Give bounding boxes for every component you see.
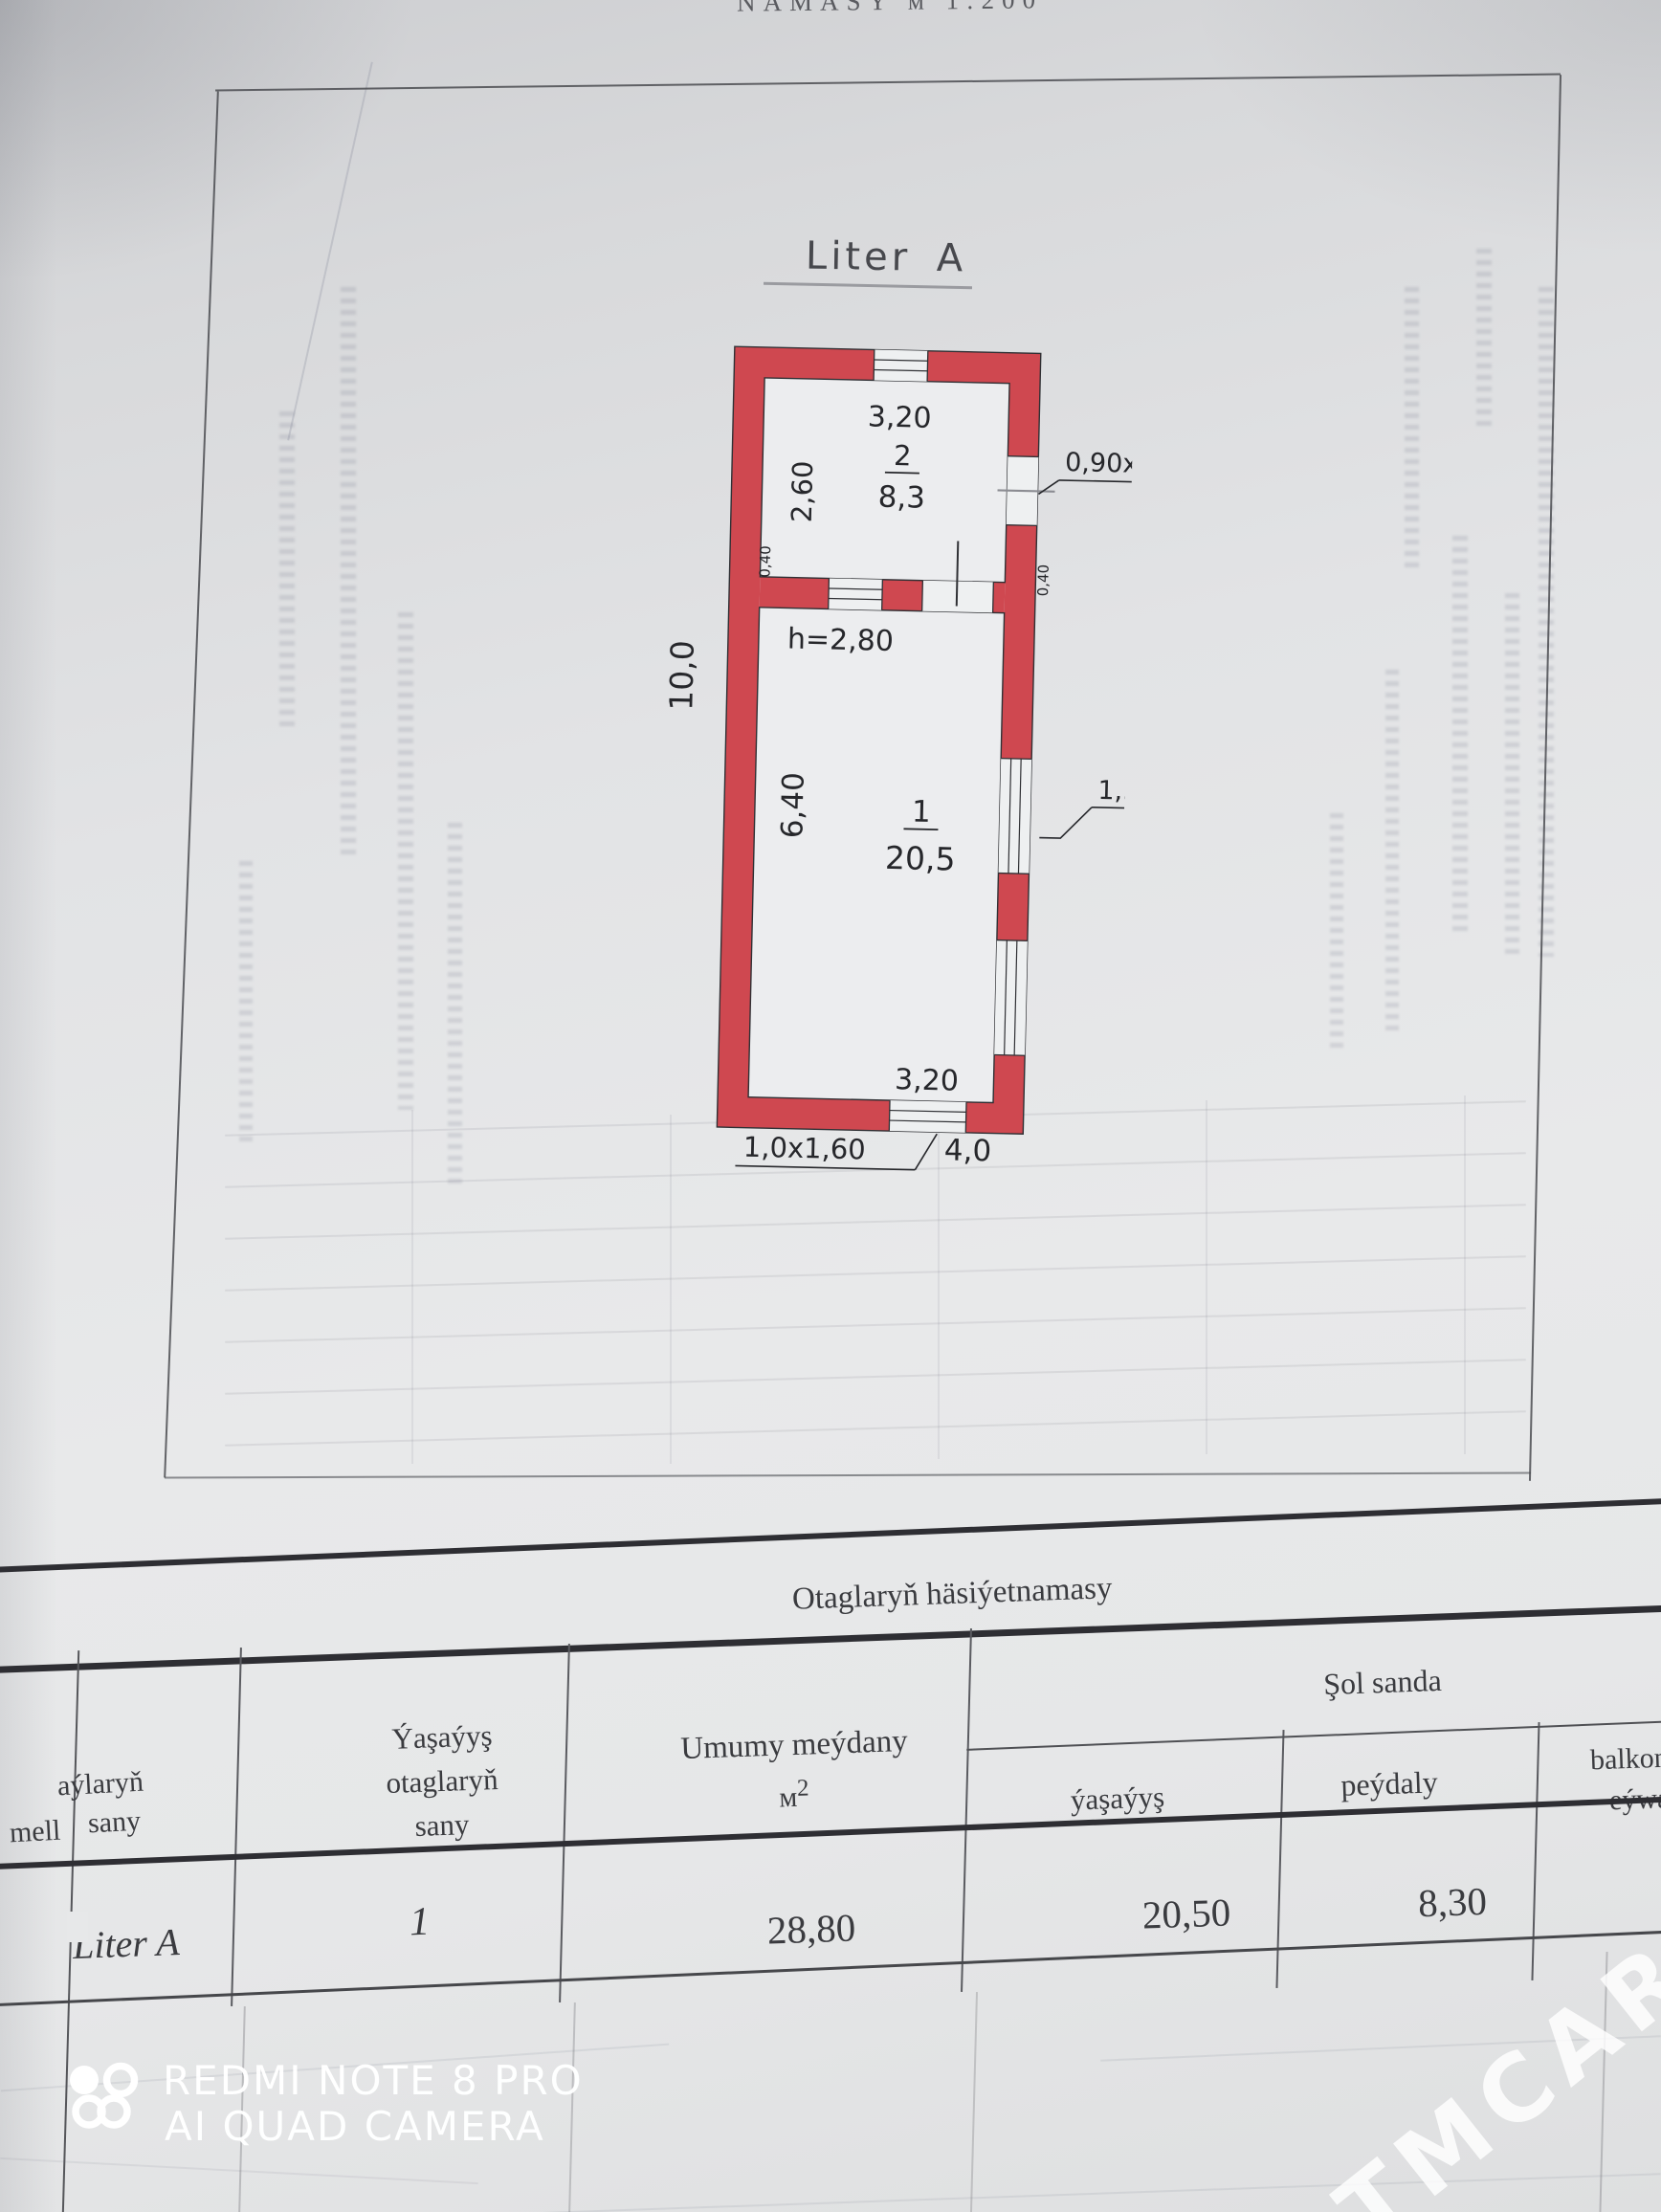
wall-thickness-left: 0,40 [756,545,774,578]
room1-area: 20,5 [885,839,956,878]
table-group-header: Şol sanda [1243,1660,1521,1705]
bottom-door-label-underline [735,1165,915,1169]
col2-header-line1: Ýaşaýyş [336,1716,547,1759]
room1-number-underline [903,829,938,829]
bleed-through-smudge [398,612,413,1110]
col3-header: Umumy meýdany [650,1723,938,1768]
plan-title-underline [764,282,972,290]
bleed-grid-line [225,1307,1526,1342]
frame-border-left [164,91,219,1477]
frame-border-right [1529,75,1561,1481]
dim-room1-height: 6,40 [775,772,811,839]
table-top-thick-line [0,1496,1661,1574]
window-label-underline [1092,807,1135,811]
table-section-title: Otaglaryň häsiýetnamasy [791,1571,1108,1617]
bleed-through-smudge [279,411,295,727]
row-useful-area: 8,30 [1375,1876,1530,1928]
room1-number: 1 [912,795,932,829]
camera-watermark-line2: AI QUAD CAMERA [165,2103,545,2150]
bleed-through-smudge [1505,593,1519,957]
bleed-grid-line [225,1204,1526,1239]
photographed-floor-plan-document: NAMASY м 1:200 Liter A [0,0,1661,2212]
bleed-grid-line [225,1359,1526,1394]
room2-number-underline [885,473,919,474]
site-watermark-partial: TMCARS [0,0,338,24]
bleed-through-smudge [1405,287,1419,574]
ceiling-height-label: h=2,80 [787,623,895,659]
col2-header-line2: otaglaryň [336,1760,547,1803]
plan-title: Liter A [806,234,967,281]
dim-room1-width: 3,20 [895,1063,960,1098]
table-col-separator-faint [568,2002,575,2212]
dim-total-height: 10,0 [662,640,701,711]
bleed-through-smudge [1385,670,1399,1033]
window-size-label: 1,50x1,50 [1097,776,1135,808]
table-group-subline [966,1720,1661,1751]
floor-plan-svg: 3,20 2,60 2 8,3 0,90x2,10 h=2,80 10,0 0,… [647,324,1136,1206]
frame-border-bottom [165,1472,1531,1479]
room2-area: 8,3 [877,480,925,516]
col1-header-line1: aýlaryň [56,1766,144,1803]
bleed-grid-line [411,1110,413,1464]
door-size-label: 0,90x2,10 [1065,448,1135,480]
window-bottom [889,1100,966,1133]
room2-number: 2 [894,439,912,472]
table-col-separator-faint [970,1992,978,2212]
door-label-underline [1059,480,1135,484]
bleed-through-smudge [1330,813,1343,1052]
window-label-leader [1039,807,1092,839]
paper-crease [287,62,372,441]
window-top [874,349,928,381]
frame-border-top [215,74,1561,92]
table-col-separator [1531,1722,1539,1980]
window-partition [829,578,883,609]
page-caption-fragment: NAMASY м 1:200 [737,0,1043,18]
bleed-through-smudge [239,861,253,1148]
bleed-grid-line [1206,1100,1207,1454]
table-col-separator [231,1648,241,2006]
window-room1-upper [998,759,1031,874]
unit-sup: 2 [797,1775,809,1801]
row-living-area: 20,50 [1109,1888,1264,1939]
bleed-through-smudge [341,287,356,861]
bleed-through-smudge [1452,536,1468,938]
dim-room2-height: 2,60 [786,460,819,522]
col3-unit: м2 [745,1774,842,1815]
col1-header-line2: mell [9,1815,61,1850]
bleed-grid-line [225,1410,1526,1446]
row-total-area: 28,80 [734,1903,889,1955]
bottom-door-label-leader [915,1134,937,1170]
col1-header-line3: sany [87,1805,142,1841]
row-building-name: Liter A [72,1919,180,1968]
dim-room2-width: 3,20 [867,400,932,435]
unit-m: м [779,1781,798,1814]
wall-thickness-right: 0,40 [1034,564,1052,597]
dim-total-width: 4,0 [943,1133,991,1168]
subcol-useful-header: peýdaly [1317,1763,1461,1803]
bleed-grid-line [225,1255,1526,1291]
bleed-through-smudge [1539,287,1554,957]
camera-watermark-line1: REDMI NOTE 8 PRO [163,2057,584,2104]
subcol-balcony-header-line1: balkon [1589,1742,1661,1778]
subcol-living-header: ýaşaýyş [1045,1779,1189,1818]
table-col-separator [559,1644,569,2002]
bottom-door-size-label: 1,0x1,60 [743,1131,867,1166]
bleed-grid-line [1464,1095,1466,1454]
camera-logo-icon [59,2057,174,2134]
col2-header-line3: sany [336,1804,547,1847]
bleed-through-smudge [448,823,462,1186]
window-room1-lower [994,940,1028,1056]
room-1-interior [748,608,1005,1103]
floor-plan-drawing: 3,20 2,60 2 8,3 0,90x2,10 h=2,80 10,0 0,… [647,324,1136,1206]
table-col-separator [961,1628,971,1992]
bleed-through-smudge [1476,249,1492,431]
row-room-count: 1 [409,1899,431,1946]
